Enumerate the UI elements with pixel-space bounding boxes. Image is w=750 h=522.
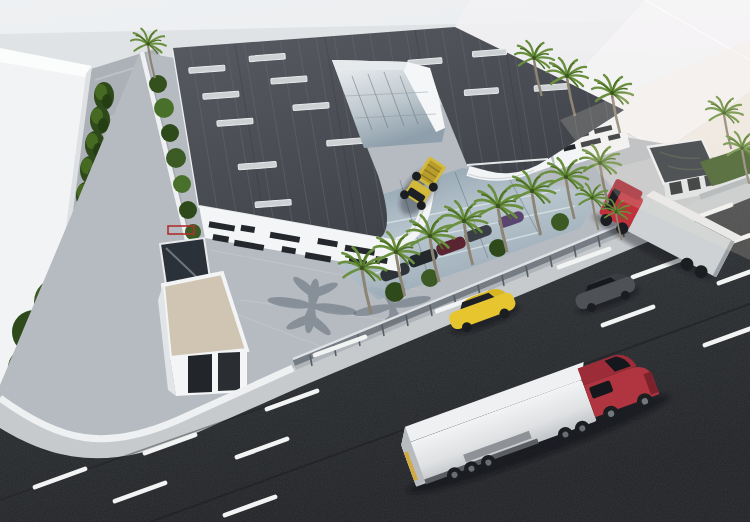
gatehouse-door — [218, 352, 240, 391]
rendering-canvas — [0, 0, 750, 522]
aerial-scene — [0, 0, 750, 522]
gatehouse-door — [188, 354, 212, 393]
